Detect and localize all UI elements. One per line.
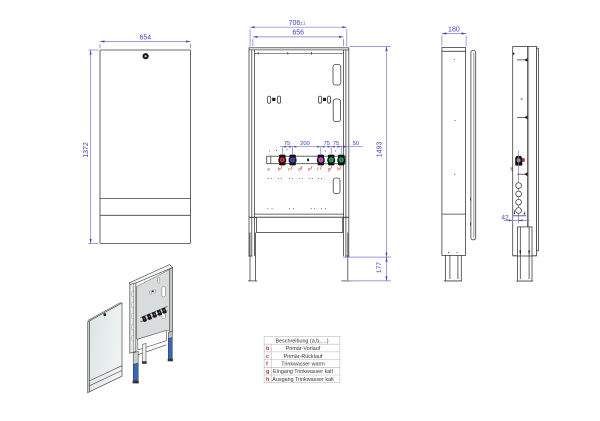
svg-text:e: e xyxy=(308,167,311,172)
svg-text:g: g xyxy=(266,369,269,375)
svg-text:b: b xyxy=(278,167,281,172)
svg-text:1493: 1493 xyxy=(376,142,383,158)
svg-text:42: 42 xyxy=(501,214,509,221)
svg-text:d: d xyxy=(298,167,301,172)
svg-text:75: 75 xyxy=(284,141,290,147)
svg-text:Beschreibung (a,b,....): Beschreibung (a,b,....) xyxy=(275,338,328,344)
svg-text:46: 46 xyxy=(510,167,514,171)
svg-text:180: 180 xyxy=(448,26,460,33)
svg-text:Primär-Rücklauf: Primär-Rücklauf xyxy=(284,354,323,360)
svg-text:177: 177 xyxy=(376,262,383,273)
svg-text:a: a xyxy=(267,167,270,172)
svg-text:75: 75 xyxy=(333,141,339,147)
svg-text:200: 200 xyxy=(300,141,310,147)
svg-text:h: h xyxy=(266,377,269,383)
svg-text:75: 75 xyxy=(323,141,329,147)
svg-text:50: 50 xyxy=(353,141,359,147)
svg-text:654: 654 xyxy=(139,35,151,42)
svg-text:Trinkwasser warm: Trinkwasser warm xyxy=(281,362,325,368)
svg-text:g: g xyxy=(328,167,331,172)
svg-text:1372: 1372 xyxy=(83,142,90,158)
svg-text:Primär-Vorlauf: Primär-Vorlauf xyxy=(286,346,321,352)
svg-text:h: h xyxy=(337,167,340,172)
svg-text:f: f xyxy=(266,362,268,368)
svg-text:Ausgang Trinkwasser kalt: Ausgang Trinkwasser kalt xyxy=(272,377,334,383)
svg-text:Eingang Trinkwasser kalt: Eingang Trinkwasser kalt xyxy=(273,369,333,375)
svg-text:656: 656 xyxy=(292,30,304,37)
svg-text:c: c xyxy=(266,354,269,360)
